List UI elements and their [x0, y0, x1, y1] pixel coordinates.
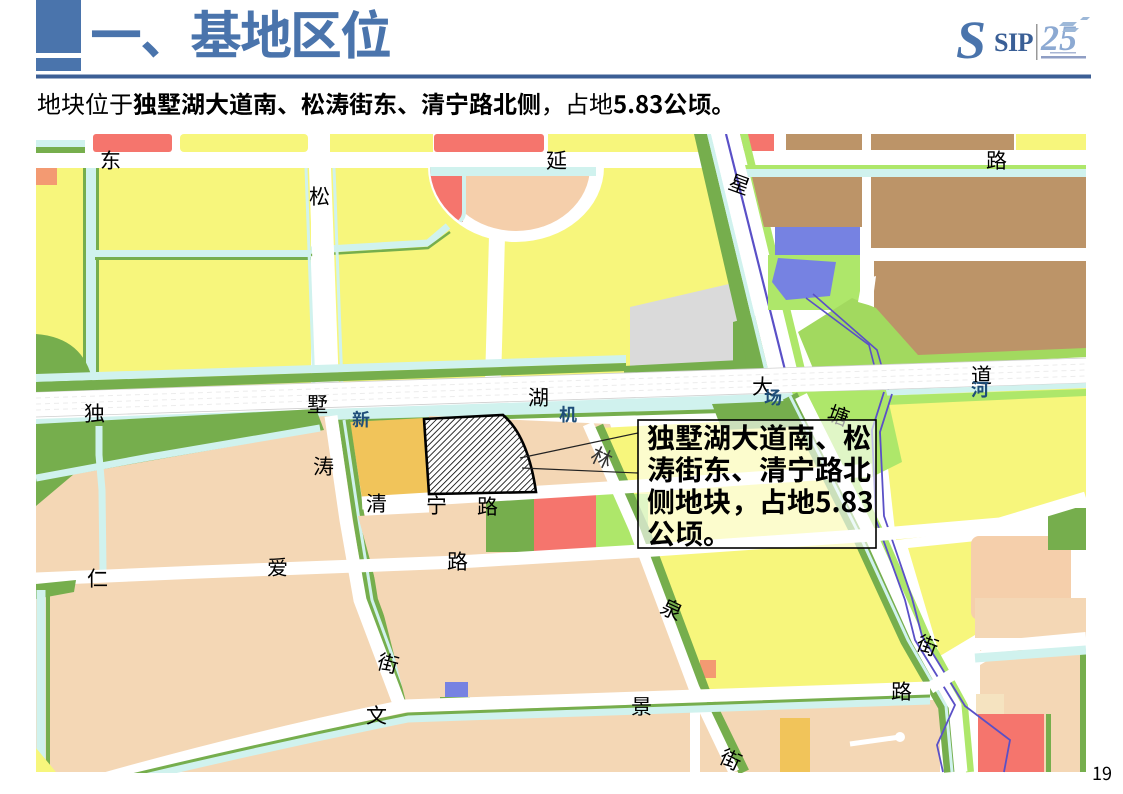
svg-text:SIP: SIP: [994, 28, 1034, 57]
svg-text:S: S: [956, 10, 986, 70]
